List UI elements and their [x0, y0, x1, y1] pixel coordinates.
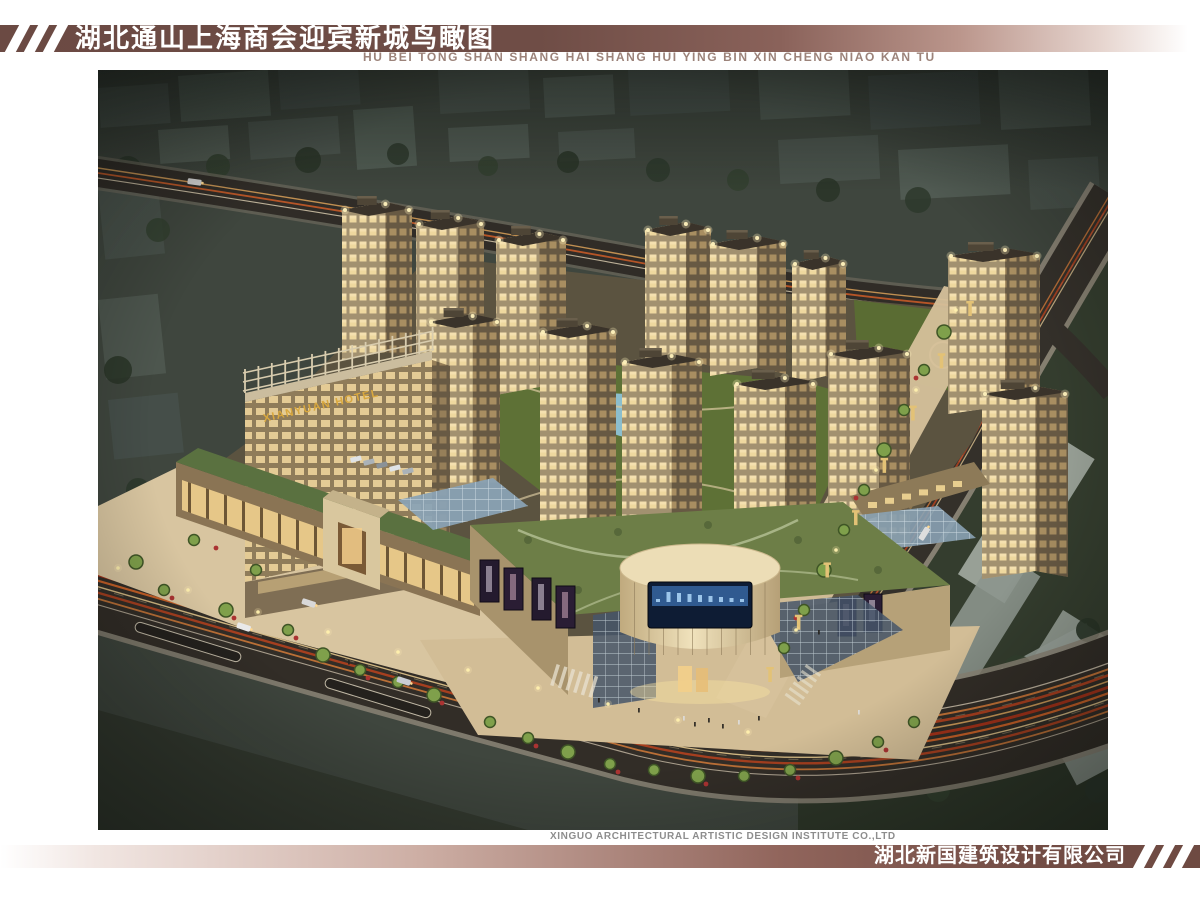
aerial-rendering-image: XIANYUAN HOTEL — [98, 70, 1108, 830]
company-name-cn: 湖北新国建筑设计有限公司 — [874, 843, 1126, 869]
institute-name-en: XINGUO ARCHITECTURAL ARTISTIC DESIGN INS… — [550, 831, 896, 842]
page-subtitle-pinyin: HU BEI TONG SHAN SHANG HAI SHANG HUI YIN… — [363, 50, 936, 64]
vignette — [98, 70, 1108, 830]
presentation-board: 湖北通山上海商会迎宾新城鸟瞰图 HU BEI TONG SHAN SHANG H… — [0, 0, 1200, 900]
footer-stripe-icon — [1171, 845, 1194, 868]
